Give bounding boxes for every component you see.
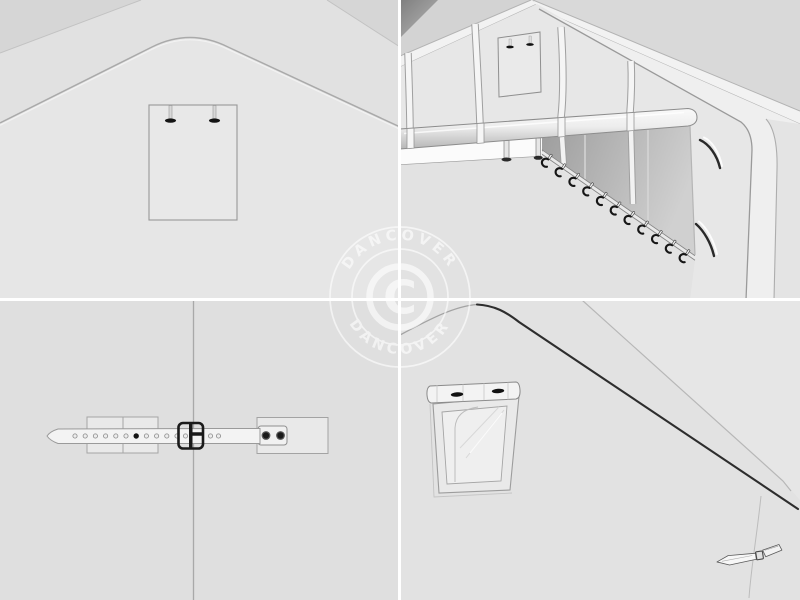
- buckle-prong: [191, 432, 203, 436]
- window-roll: [427, 382, 520, 403]
- fabric-strap: [561, 27, 563, 118]
- fabric-strap: [631, 131, 633, 204]
- copyright-icon: C: [370, 267, 431, 328]
- dancover-watermark: C DANCOVER DANCOVER: [315, 212, 485, 382]
- rivet-icon: [262, 431, 271, 440]
- document-pouch-interior: [498, 32, 541, 97]
- copyright-letter: C: [383, 271, 417, 325]
- fabric-strap: [562, 137, 564, 167]
- fabric-strap: [630, 61, 631, 113]
- window-assembly: [427, 382, 520, 497]
- rivet-icon: [276, 431, 285, 440]
- fabric-strap: [408, 53, 410, 130]
- window-glass: [442, 406, 507, 484]
- document-pouch: [149, 105, 237, 220]
- product-image-grid: C DANCOVER DANCOVER: [0, 0, 800, 600]
- strap-hole-engaged: [134, 433, 139, 438]
- fabric-strap: [475, 24, 480, 124]
